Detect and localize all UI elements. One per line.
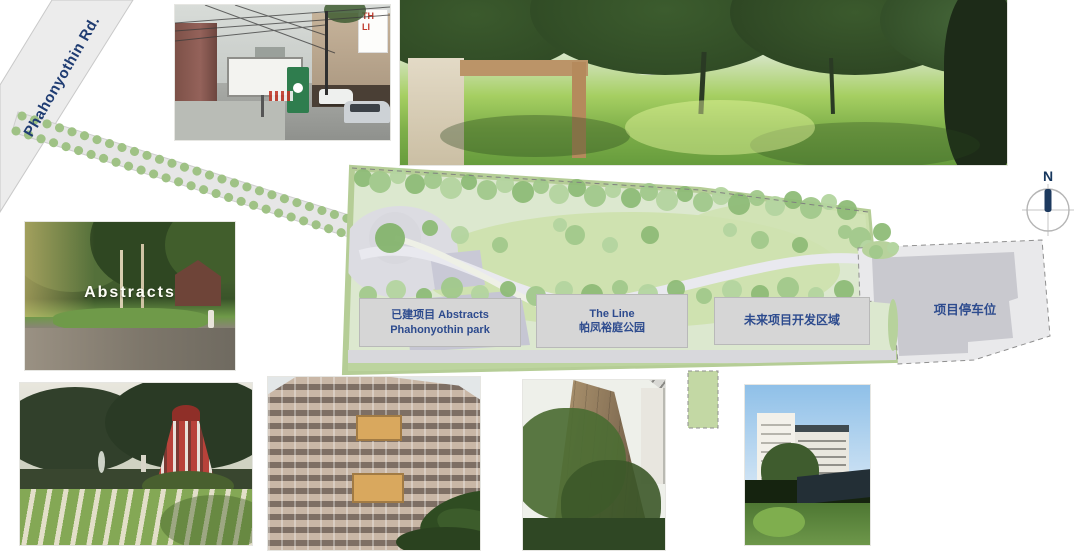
parking-grass-strip [888,299,898,351]
plan-label-built: 已建项目 Abstracts Phahonyothin park [359,298,521,347]
plan-label-future-line1: 未来项目开发区域 [744,313,840,329]
slide-canvas: Phahonyothin Rd. N TH LI [0,0,1080,557]
phahonyothin-road-band [0,0,133,212]
north-needle-icon [1045,189,1052,212]
parking-tree [869,245,883,259]
south-green-strip [688,371,718,428]
site-plan-drawing [0,0,1080,557]
plan-label-parking: 项目停车位 [900,300,1030,320]
plan-label-built-line1: 已建项目 Abstracts [391,308,489,322]
plan-label-theline: The Line 帕凤裕庭公园 [536,294,688,348]
parking-tree [887,242,899,254]
compass-icon [1022,184,1074,236]
plan-label-theline-line1: The Line [589,307,634,321]
plan-label-parking-line1: 项目停车位 [934,302,997,318]
compass-north-label: N [1041,168,1055,184]
plan-label-future: 未来项目开发区域 [714,297,870,345]
plan-label-built-line2: Phahonyothin park [390,323,490,337]
plan-label-theline-line2: 帕凤裕庭公园 [579,321,645,335]
